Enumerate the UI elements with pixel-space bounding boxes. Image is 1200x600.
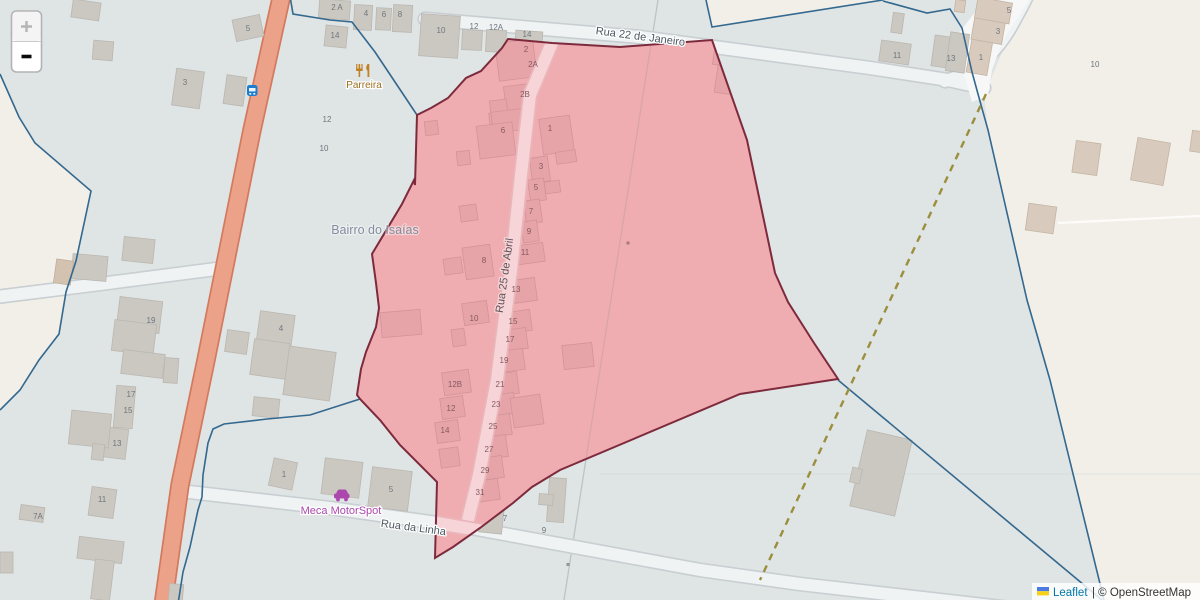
- svg-text:7A: 7A: [33, 512, 43, 521]
- svg-text:13: 13: [947, 54, 956, 63]
- svg-text:8: 8: [482, 256, 487, 265]
- svg-text:27: 27: [485, 445, 494, 454]
- svg-text:10: 10: [470, 314, 479, 323]
- svg-text:29: 29: [481, 466, 490, 475]
- svg-text:3: 3: [996, 27, 1001, 36]
- svg-text:1: 1: [548, 124, 553, 133]
- svg-text:12: 12: [447, 404, 456, 413]
- svg-text:5: 5: [389, 485, 394, 494]
- svg-text:Bairro do Isaías: Bairro do Isaías: [331, 223, 419, 237]
- svg-text:5: 5: [534, 183, 539, 192]
- svg-text:2B: 2B: [520, 90, 530, 99]
- svg-text:5: 5: [1007, 6, 1012, 15]
- svg-text:13: 13: [113, 439, 122, 448]
- svg-text:Meca MotorSpot: Meca MotorSpot: [301, 505, 382, 517]
- svg-text:21: 21: [496, 380, 505, 389]
- svg-text:2 A: 2 A: [331, 3, 343, 12]
- svg-text:7: 7: [503, 514, 508, 523]
- svg-text:9: 9: [527, 227, 532, 236]
- svg-text:| © OpenStreetMap: | © OpenStreetMap: [1092, 587, 1191, 599]
- svg-text:13: 13: [512, 285, 521, 294]
- svg-text:8: 8: [398, 10, 403, 19]
- svg-text:10: 10: [1091, 60, 1100, 69]
- svg-text:6: 6: [382, 10, 387, 19]
- svg-text:17: 17: [127, 390, 136, 399]
- svg-text:4: 4: [364, 9, 369, 18]
- svg-text:15: 15: [509, 317, 518, 326]
- svg-text:9: 9: [542, 526, 547, 535]
- svg-text:14: 14: [331, 31, 340, 40]
- svg-text:31: 31: [476, 488, 485, 497]
- svg-text:14: 14: [523, 30, 532, 39]
- svg-text:12: 12: [323, 115, 332, 124]
- svg-text:12B: 12B: [448, 380, 462, 389]
- svg-text:25: 25: [489, 422, 498, 431]
- svg-text:1: 1: [979, 53, 984, 62]
- svg-text:14: 14: [441, 426, 450, 435]
- svg-text:11: 11: [893, 51, 902, 60]
- svg-text:11: 11: [98, 495, 107, 504]
- svg-text:1: 1: [282, 470, 287, 479]
- svg-text:3: 3: [539, 162, 544, 171]
- svg-text:10: 10: [320, 144, 329, 153]
- svg-text:7: 7: [529, 207, 534, 216]
- svg-text:3: 3: [183, 78, 188, 87]
- svg-text:Leaflet: Leaflet: [1053, 587, 1088, 599]
- svg-text:2A: 2A: [528, 60, 538, 69]
- svg-text:12: 12: [470, 22, 479, 31]
- svg-text:17: 17: [506, 335, 515, 344]
- svg-text:19: 19: [147, 316, 156, 325]
- svg-text:4: 4: [279, 324, 284, 333]
- svg-text:6: 6: [501, 126, 506, 135]
- svg-text:11: 11: [521, 248, 530, 257]
- svg-text:19: 19: [500, 356, 509, 365]
- svg-text:23: 23: [492, 400, 501, 409]
- svg-text:5: 5: [246, 24, 251, 33]
- svg-text:Parreira: Parreira: [346, 80, 382, 91]
- svg-text:12A: 12A: [489, 23, 504, 32]
- svg-text:10: 10: [437, 26, 446, 35]
- svg-text:2: 2: [524, 45, 529, 54]
- svg-text:15: 15: [124, 406, 133, 415]
